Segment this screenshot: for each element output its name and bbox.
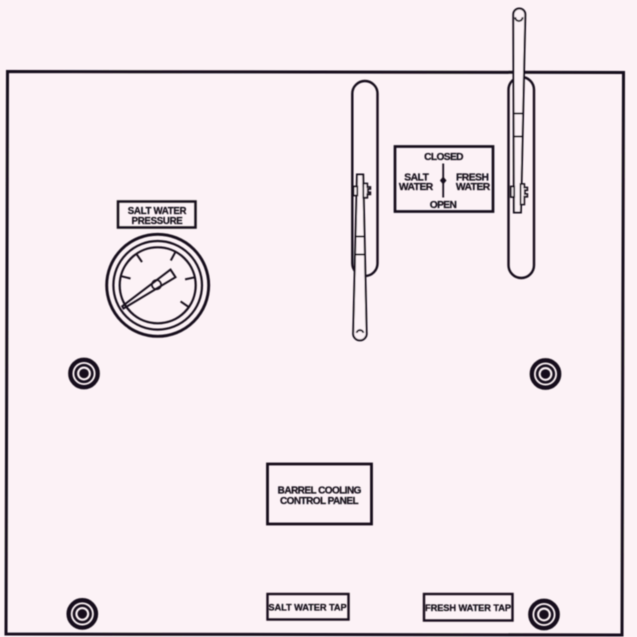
svg-text:SALT WATER TAP: SALT WATER TAP <box>268 603 346 613</box>
svg-text:CLOSED: CLOSED <box>424 152 463 163</box>
svg-text:OPEN: OPEN <box>430 200 457 211</box>
svg-text:WATER: WATER <box>456 182 491 193</box>
svg-text:CONTROL PANEL: CONTROL PANEL <box>280 496 358 507</box>
svg-text:WATER: WATER <box>399 182 434 193</box>
svg-text:PRESSURE: PRESSURE <box>132 216 184 227</box>
svg-text:BARREL COOLING: BARREL COOLING <box>278 486 362 497</box>
svg-text:FRESH WATER TAP: FRESH WATER TAP <box>425 603 511 613</box>
